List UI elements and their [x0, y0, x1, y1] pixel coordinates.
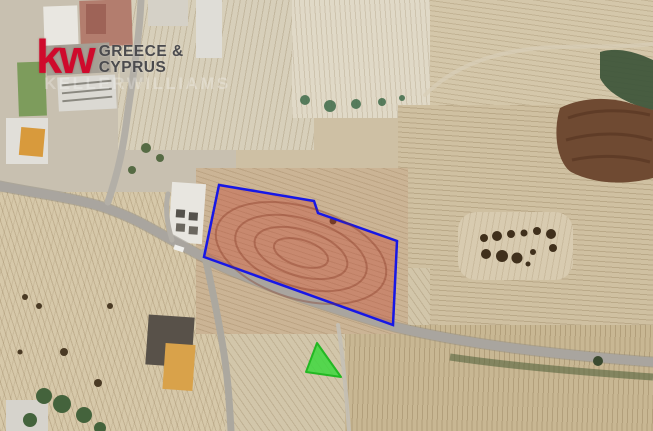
- kw-logo-text: kw: [36, 40, 93, 74]
- shrub-row: [300, 95, 405, 112]
- kw-region-line1: GREECE &: [99, 44, 184, 60]
- orchard-trees: [480, 227, 557, 267]
- satellite-image: KELLERWILLIAMS kw GREECE & CYPRUS: [0, 0, 653, 431]
- road-south: [204, 252, 231, 431]
- building: [148, 0, 188, 26]
- building-orange-roof: [19, 127, 45, 157]
- building: [196, 0, 222, 58]
- track-south: [338, 325, 349, 431]
- kw-logo: kw GREECE & CYPRUS: [36, 40, 184, 76]
- location-marker: [306, 343, 341, 377]
- kw-region-text: GREECE & CYPRUS: [99, 44, 184, 76]
- kw-region-line2: CYPRUS: [99, 60, 184, 76]
- orange-yard: [162, 343, 195, 391]
